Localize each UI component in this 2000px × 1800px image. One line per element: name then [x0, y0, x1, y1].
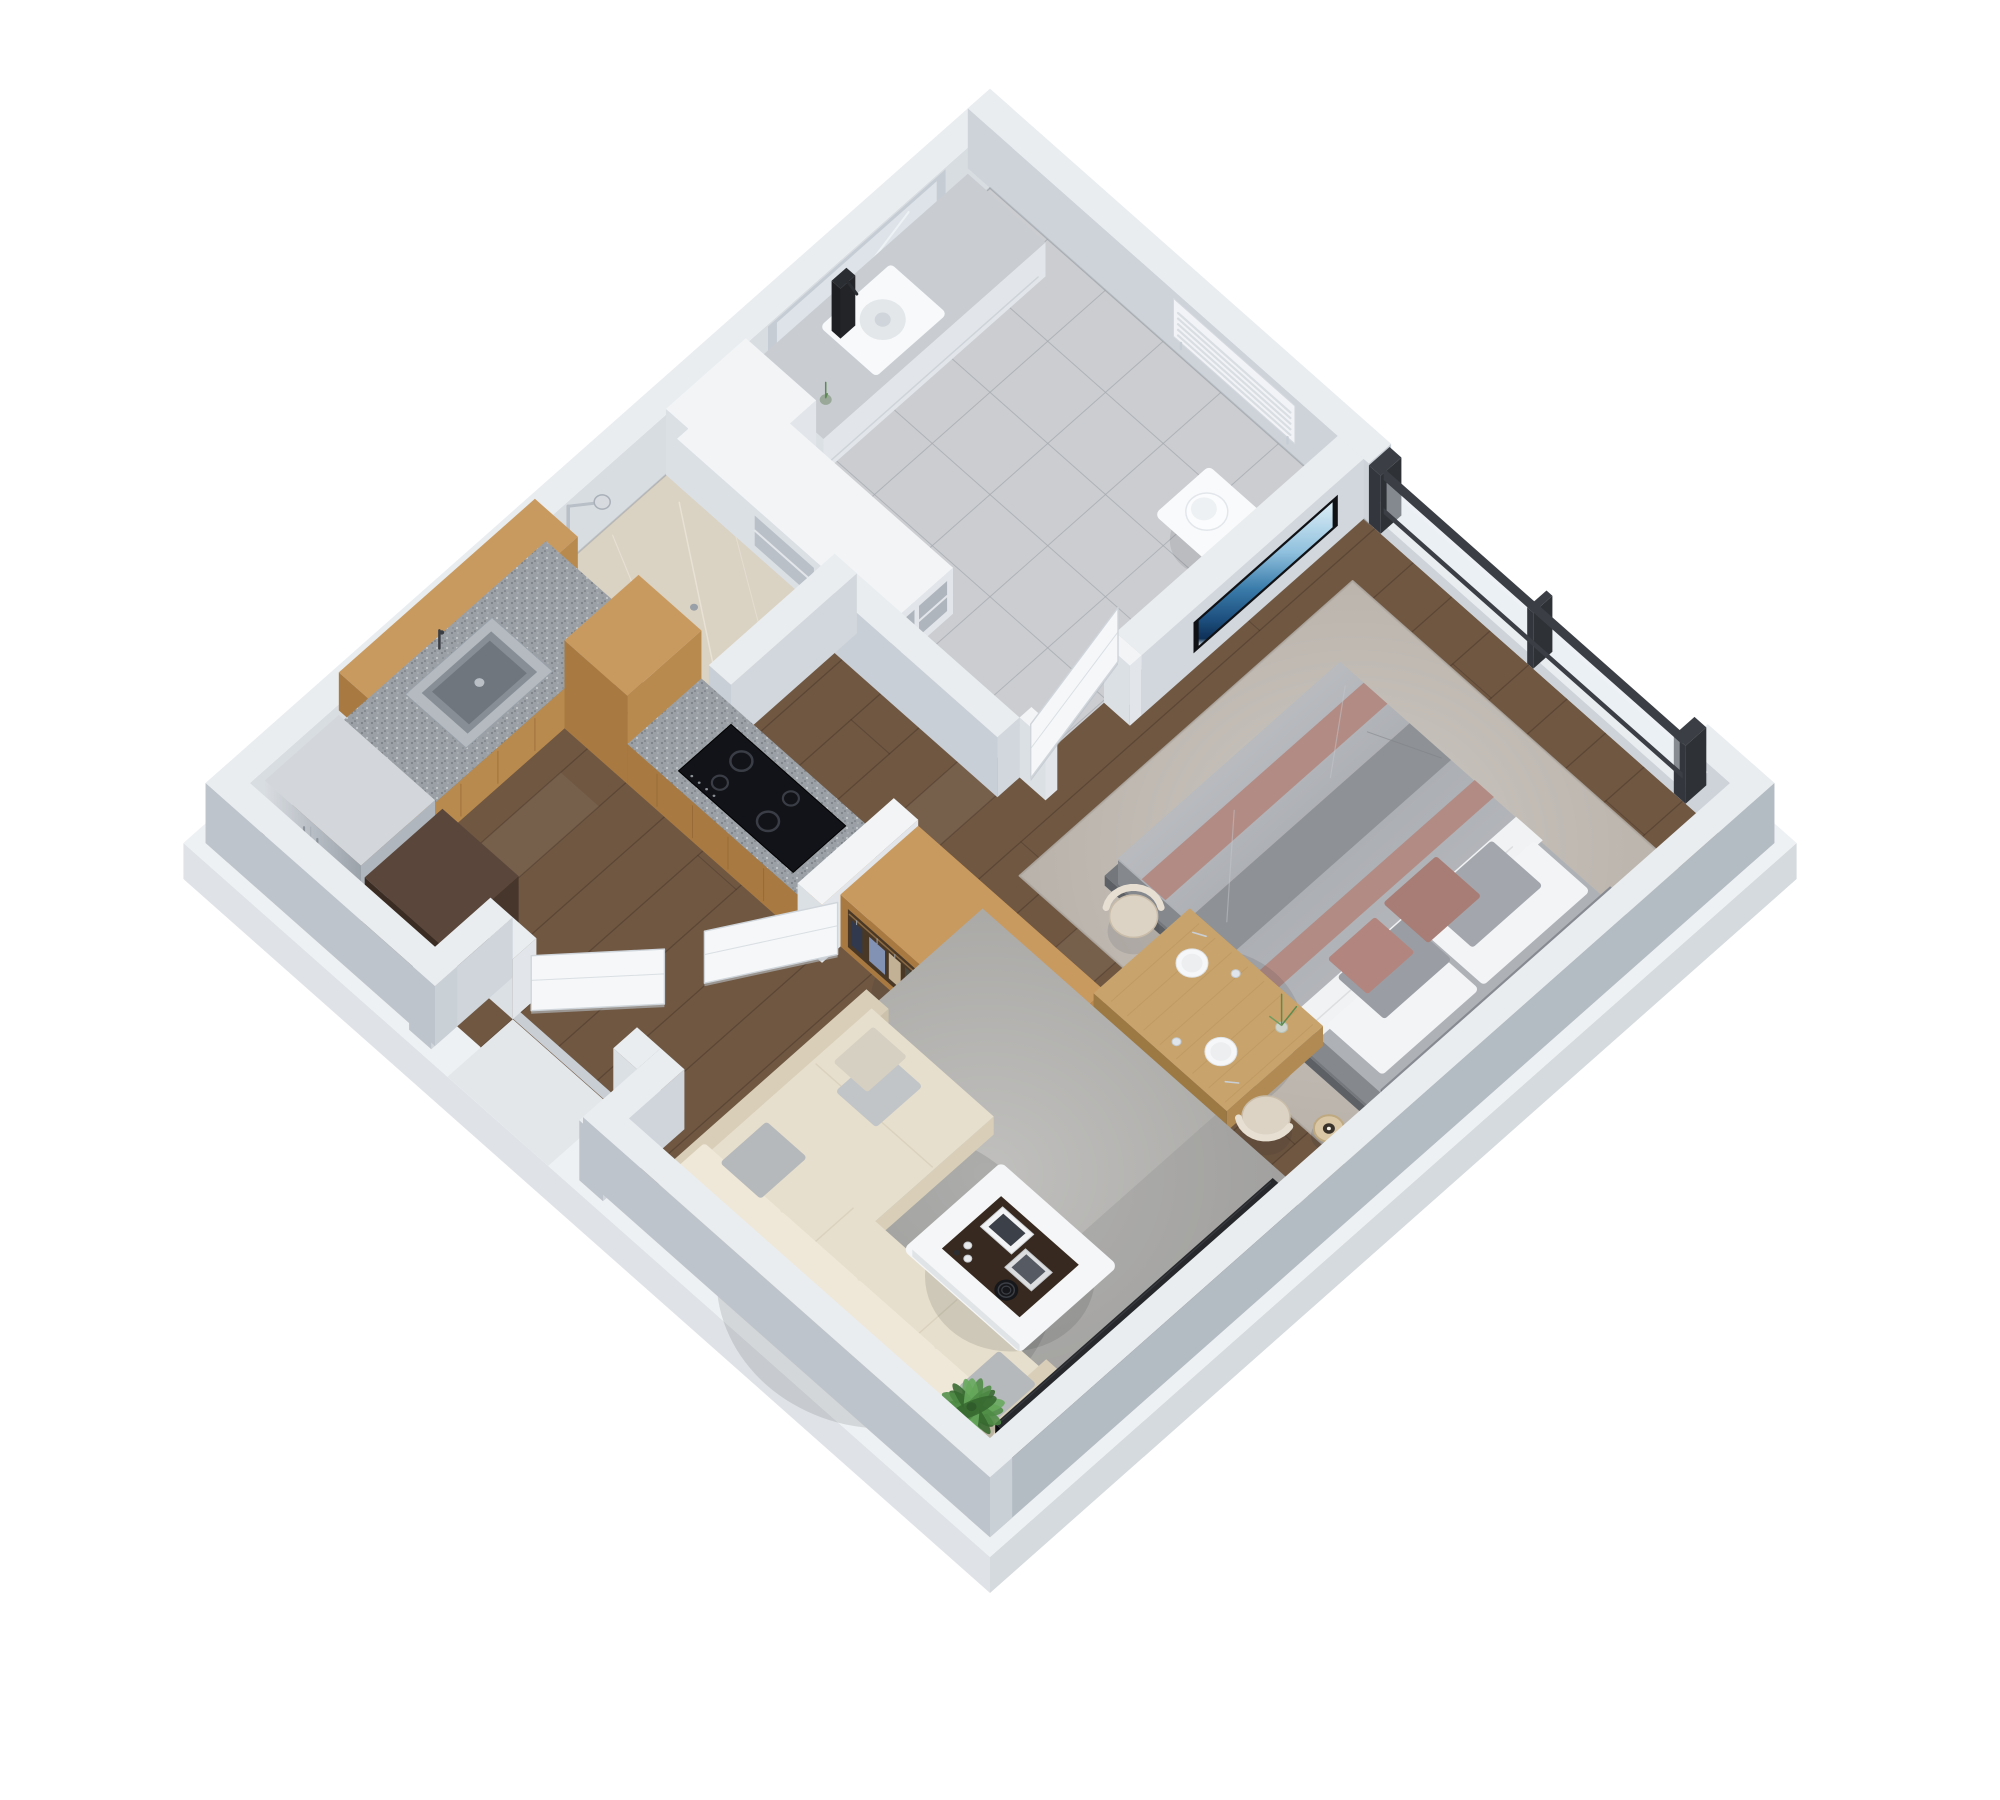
floorplan-3d-render	[0, 0, 2000, 1800]
entry-door	[531, 949, 664, 1014]
floorplan-stage	[0, 0, 2000, 1800]
